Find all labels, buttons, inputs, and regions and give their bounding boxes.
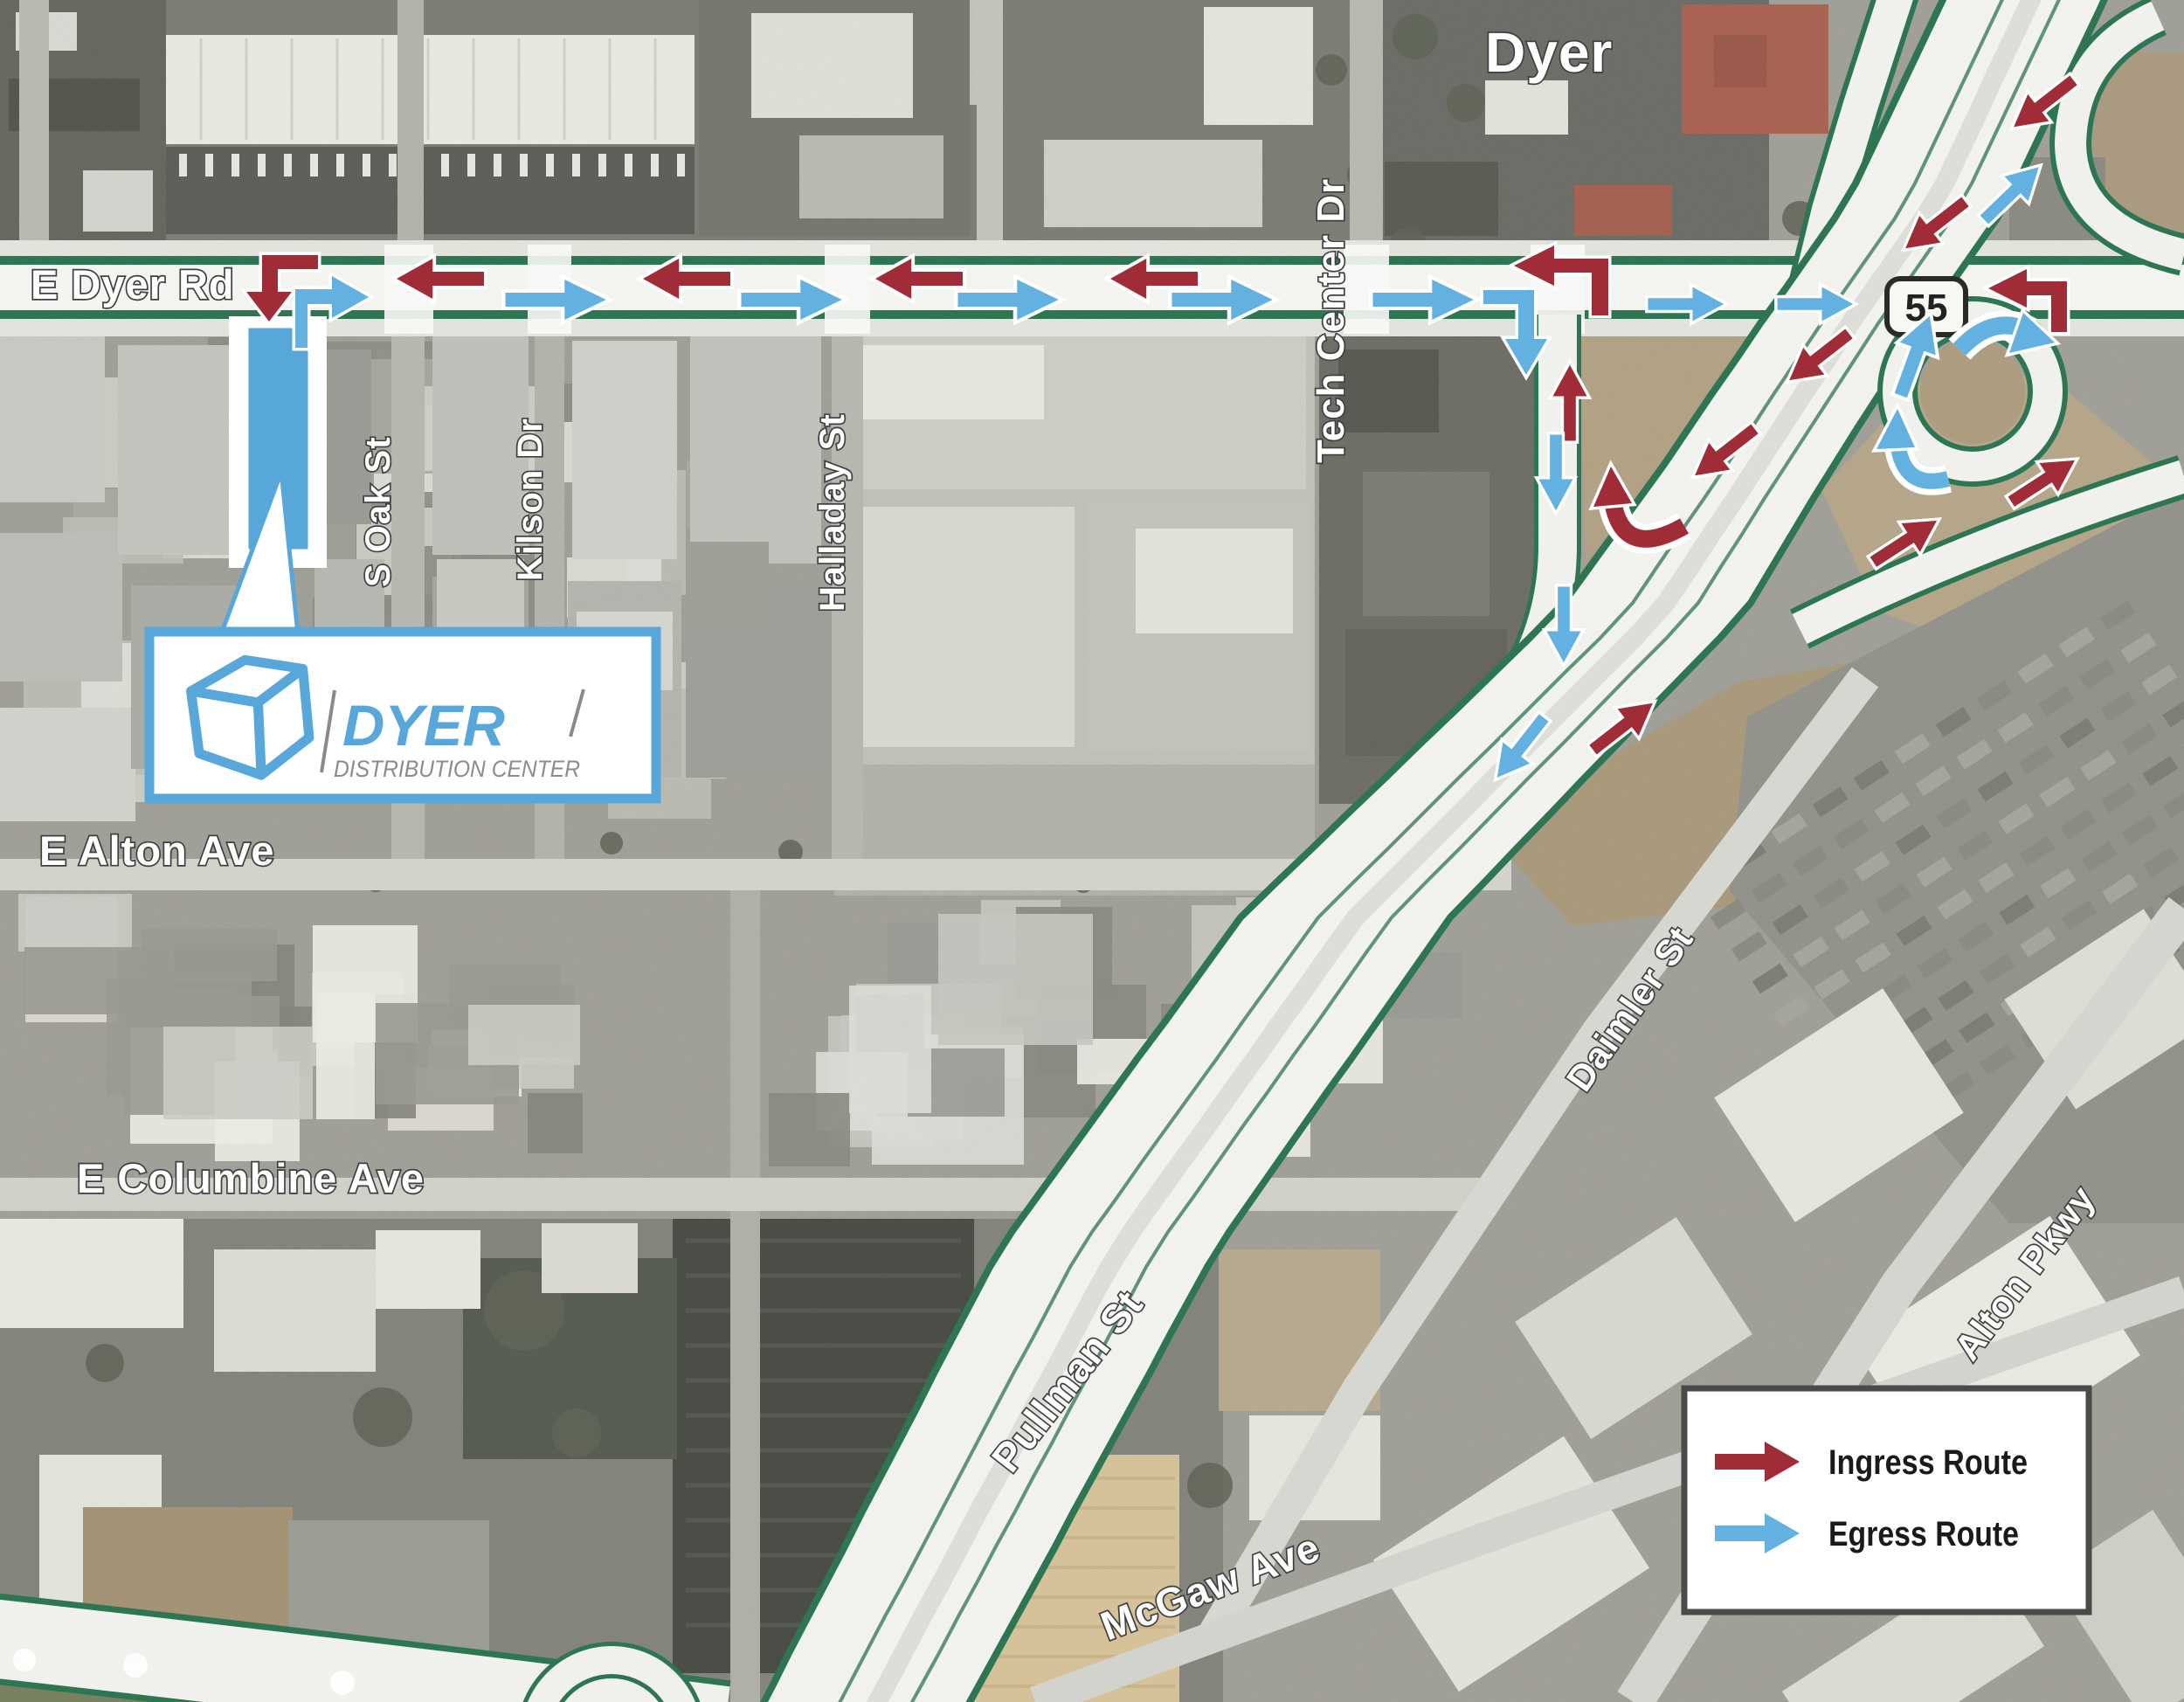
svg-text:Dyer: Dyer	[1485, 21, 1613, 84]
svg-text:E Columbine Ave: E Columbine Ave	[77, 1155, 425, 1201]
svg-text:S Oak St: S Oak St	[359, 436, 397, 587]
svg-text:Ingress Route: Ingress Route	[1828, 1443, 2028, 1482]
svg-text:E Alton Ave: E Alton Ave	[39, 827, 275, 874]
svg-text:DISTRIBUTION CENTER: DISTRIBUTION CENTER	[334, 756, 580, 782]
svg-text:Egress Route: Egress Route	[1828, 1515, 2019, 1553]
svg-text:DYER: DYER	[342, 693, 505, 758]
svg-text:E Dyer Rd: E Dyer Rd	[31, 261, 235, 308]
svg-text:Kilson Dr: Kilson Dr	[511, 418, 549, 581]
svg-text:Halladay St: Halladay St	[813, 413, 852, 612]
svg-text:Tech Center Dr: Tech Center Dr	[1310, 178, 1352, 463]
